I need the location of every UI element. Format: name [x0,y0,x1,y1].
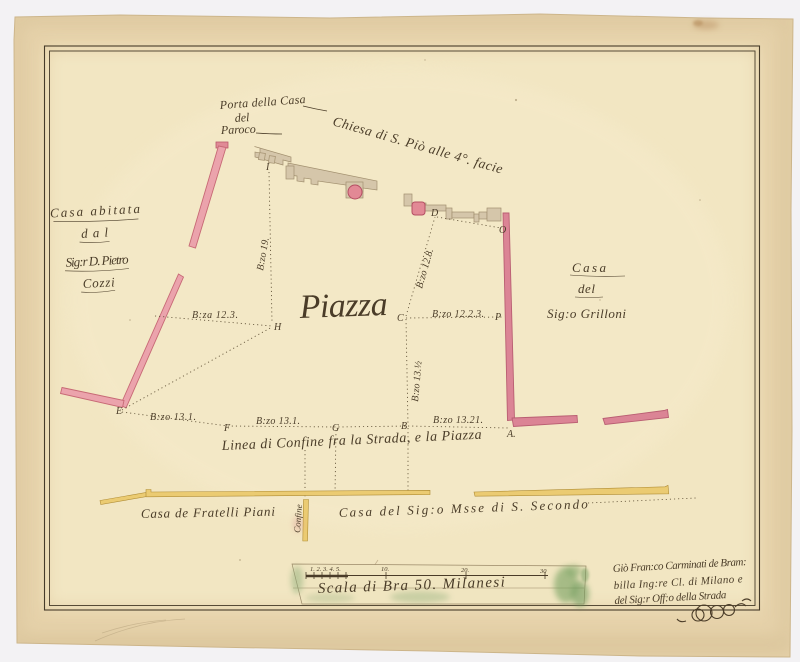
svg-text:dal: dal [81,225,109,241]
svg-text:Cozzi: Cozzi [82,274,115,291]
svg-text:20.: 20. [461,567,470,574]
svg-text:D: D [430,208,439,219]
svg-text:30: 30 [539,568,547,575]
svg-text:O: O [499,225,506,236]
svg-text:B:zo 13.1.: B:zo 13.1. [256,416,300,427]
svg-text:1. 2. 3. 4. 5.: 1. 2. 3. 4. 5. [310,566,341,573]
svg-text:C: C [397,313,404,324]
svg-text:F: F [223,423,231,434]
svg-text:B:zo 12.2.3.: B:zo 12.2.3. [432,309,484,320]
svg-text:del: del [578,281,595,296]
svg-text:H: H [273,322,282,333]
svg-text:A.: A. [506,429,516,440]
svg-text:Sig:o Grilloni: Sig:o Grilloni [547,306,626,321]
svg-text:G: G [332,423,339,434]
svg-text:10.: 10. [381,566,390,573]
svg-text:Piazza: Piazza [298,286,388,326]
svg-text:E: E [115,406,122,417]
svg-text:Casa de Fratelli Piani: Casa de Fratelli Piani [141,504,276,521]
svg-text:Casa: Casa [572,260,607,275]
svg-text:B:zo 13.1.: B:zo 13.1. [150,412,196,423]
svg-text:B:zo 13.21.: B:zo 13.21. [433,415,483,426]
svg-text:P: P [494,312,501,323]
svg-text:B:za 12.3.: B:za 12.3. [192,310,238,321]
svg-text:I: I [265,162,270,173]
svg-text:Paroco: Paroco [220,122,256,137]
svg-text:Confine: Confine [292,504,304,533]
